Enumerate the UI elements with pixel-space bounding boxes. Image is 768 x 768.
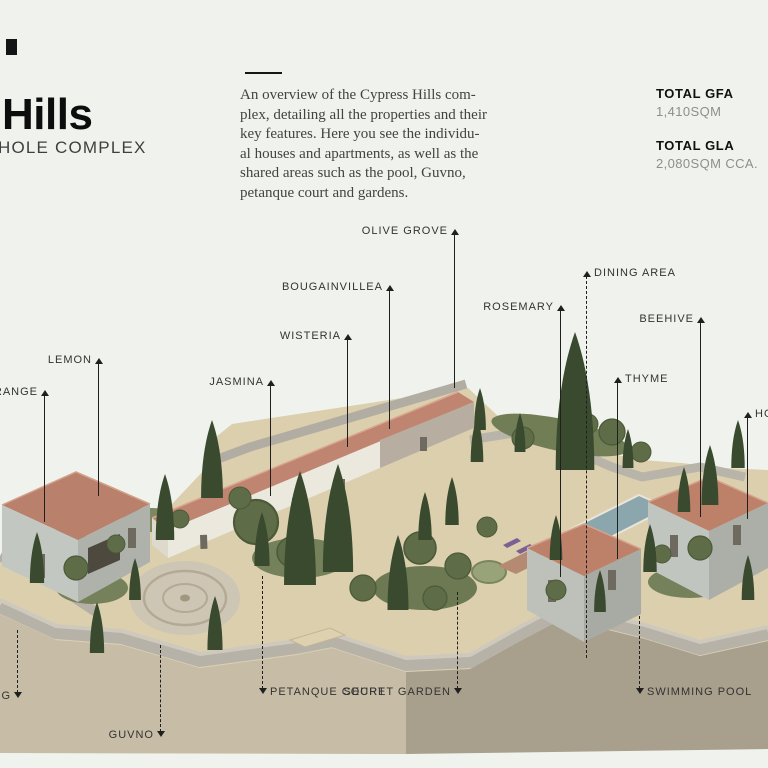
callout-line-orange	[44, 395, 45, 522]
callout-label-olive-grove: OLIVE GROVE	[362, 225, 448, 237]
brochure-page: Hills HOLE COMPLEX An overview of the Cy…	[0, 0, 768, 768]
callout-arrow-guvno	[157, 731, 165, 737]
callout-label-bougainvillea: BOUGAINVILLEA	[282, 281, 383, 293]
callout-arrow-ng	[14, 692, 22, 698]
callout-arrow-orange	[41, 390, 49, 396]
callout-arrow-lemon	[95, 358, 103, 364]
callout-arrow-bougainvillea	[386, 285, 394, 291]
callout-label-secret-garden: SECRET GARDEN	[343, 686, 451, 698]
callout-label-lemon: LEMON	[48, 354, 92, 366]
callout-line-petanque-court	[262, 576, 263, 689]
callout-arrow-ho	[744, 412, 752, 418]
callout-line-wisteria	[347, 339, 348, 447]
callout-arrow-dining-area	[583, 271, 591, 277]
callout-layer: OLIVE GROVEBOUGAINVILLEAWISTERIAJASMINAL…	[0, 0, 768, 768]
callout-line-jasmina	[270, 385, 271, 496]
callout-line-ng	[17, 630, 18, 693]
callout-label-guvno: GUVNO	[109, 729, 154, 741]
callout-label-swimming-pool: SWIMMING POOL	[647, 686, 752, 698]
callout-arrow-wisteria	[344, 334, 352, 340]
callout-label-ho: HO	[755, 408, 768, 420]
callout-line-guvno	[160, 645, 161, 732]
callout-line-swimming-pool	[639, 616, 640, 689]
callout-line-ho	[747, 417, 748, 519]
callout-arrow-rosemary	[557, 305, 565, 311]
callout-line-thyme	[617, 382, 618, 559]
callout-label-ng: NG	[0, 690, 11, 702]
callout-label-thyme: THYME	[625, 373, 669, 385]
callout-line-lemon	[98, 363, 99, 496]
callout-arrow-secret-garden	[454, 688, 462, 694]
callout-arrow-thyme	[614, 377, 622, 383]
callout-arrow-swimming-pool	[636, 688, 644, 694]
callout-line-rosemary	[560, 310, 561, 577]
callout-label-dining-area: DINING AREA	[594, 267, 676, 279]
callout-label-beehive: BEEHIVE	[639, 313, 694, 325]
callout-label-jasmina: JASMINA	[209, 376, 264, 388]
callout-arrow-petanque-court	[259, 688, 267, 694]
callout-label-rosemary: ROSEMARY	[483, 301, 554, 313]
callout-line-dining-area	[586, 276, 587, 658]
callout-line-bougainvillea	[389, 290, 390, 429]
callout-arrow-olive-grove	[451, 229, 459, 235]
callout-line-beehive	[700, 322, 701, 517]
callout-arrow-beehive	[697, 317, 705, 323]
callout-arrow-jasmina	[267, 380, 275, 386]
callout-line-olive-grove	[454, 234, 455, 388]
callout-line-secret-garden	[457, 592, 458, 689]
callout-label-wisteria: WISTERIA	[280, 330, 341, 342]
callout-label-orange: ORANGE	[0, 386, 38, 398]
